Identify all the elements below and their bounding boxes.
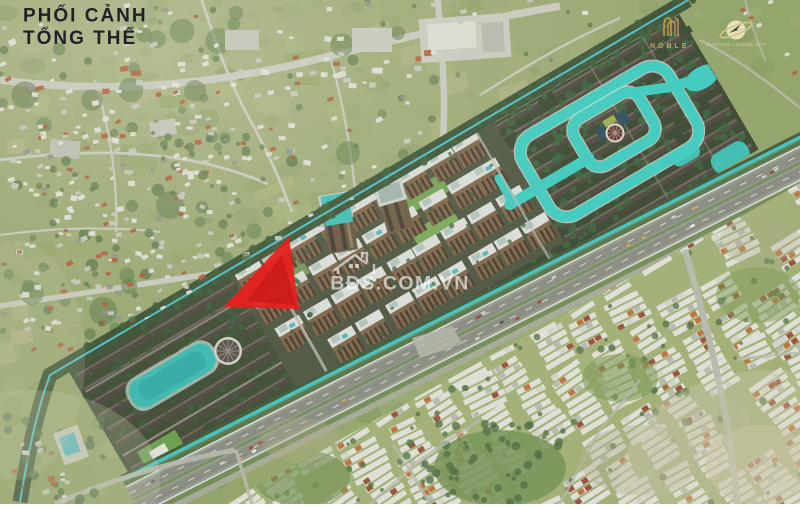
svg-text:SUNSHINE LEGEND CITY: SUNSHINE LEGEND CITY [706, 42, 767, 47]
svg-text:BĐS.COM.VN: BĐS.COM.VN [330, 273, 470, 295]
svg-text:TỔNG THỂ: TỔNG THỂ [23, 27, 137, 49]
svg-text:PHỐI CẢNH: PHỐI CẢNH [23, 5, 148, 27]
svg-text:NOBLE: NOBLE [650, 43, 690, 50]
